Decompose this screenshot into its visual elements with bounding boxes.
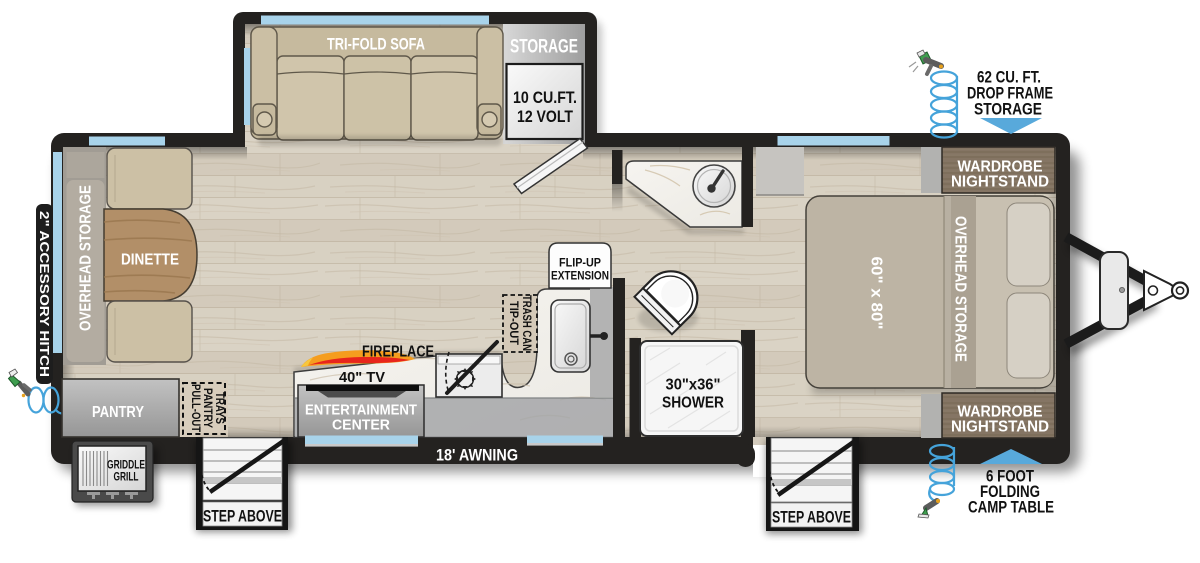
svg-text:CENTER: CENTER [332, 418, 391, 434]
svg-text:SHOWER: SHOWER [662, 395, 724, 412]
svg-text:STEP ABOVE: STEP ABOVE [203, 508, 282, 526]
svg-text:STORAGE: STORAGE [510, 36, 578, 58]
svg-text:TIP-OUT: TIP-OUT [507, 301, 521, 346]
svg-text:2" ACCESSORY HITCH: 2" ACCESSORY HITCH [37, 211, 51, 377]
svg-text:30"x36": 30"x36" [666, 377, 721, 394]
svg-text:PANTRY: PANTRY [92, 404, 145, 421]
svg-text:OVERHEAD STORAGE: OVERHEAD STORAGE [952, 216, 969, 362]
svg-text:NIGHTSTAND: NIGHTSTAND [951, 419, 1049, 436]
svg-text:GRILL: GRILL [114, 472, 139, 484]
svg-text:STEP ABOVE: STEP ABOVE [772, 509, 851, 527]
svg-text:TRASH CAN: TRASH CAN [520, 295, 534, 351]
svg-text:EXTENSION: EXTENSION [551, 269, 609, 283]
svg-text:TRI-FOLD SOFA: TRI-FOLD SOFA [327, 36, 425, 54]
svg-text:PULL-OUT: PULL-OUT [189, 384, 203, 433]
svg-text:FLIP-UP: FLIP-UP [559, 256, 601, 270]
svg-text:CAMP TABLE: CAMP TABLE [968, 499, 1054, 517]
svg-text:12 VOLT: 12 VOLT [517, 107, 574, 126]
svg-text:18' AWNING: 18' AWNING [436, 447, 518, 465]
svg-text:GRIDDLE: GRIDDLE [107, 460, 145, 472]
svg-text:OVERHEAD STORAGE: OVERHEAD STORAGE [78, 185, 95, 331]
svg-text:60" x 80": 60" x 80" [868, 257, 885, 330]
svg-text:DINETTE: DINETTE [121, 252, 179, 269]
svg-text:FIREPLACE: FIREPLACE [362, 344, 434, 361]
svg-text:ENTERTAINMENT: ENTERTAINMENT [305, 403, 417, 419]
svg-text:PANTRY: PANTRY [201, 388, 215, 428]
svg-text:NIGHTSTAND: NIGHTSTAND [951, 174, 1049, 191]
svg-text:10 CU.FT.: 10 CU.FT. [513, 88, 577, 107]
svg-text:STORAGE: STORAGE [974, 101, 1042, 119]
svg-text:TRAYS: TRAYS [213, 392, 227, 424]
svg-text:40" TV: 40" TV [339, 369, 385, 386]
